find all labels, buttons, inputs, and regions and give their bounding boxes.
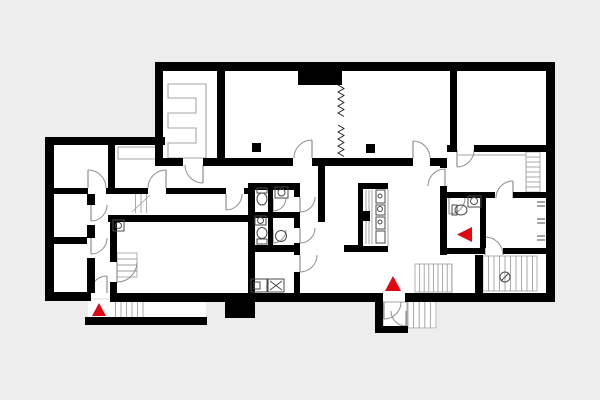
wall-outer-right xyxy=(546,62,555,302)
wall-lw-top-b xyxy=(106,188,148,194)
wall-eroom-right xyxy=(217,62,225,165)
wall-stairC-left xyxy=(475,255,483,293)
wall-rw248-b xyxy=(503,248,547,254)
island-stub xyxy=(344,245,358,252)
floor-plan-page xyxy=(0,0,600,400)
wall-hall-right-a xyxy=(440,158,447,168)
wall-lw-L34div xyxy=(53,237,87,244)
wall-outer-bottom-right xyxy=(405,293,555,302)
wall-div158-b xyxy=(203,158,293,166)
wall-corridor xyxy=(318,166,325,222)
wall-topright-v xyxy=(450,70,457,152)
wall-lw-vert-b xyxy=(87,225,95,238)
wall-div158-c xyxy=(312,158,413,166)
wall-lw-top-d xyxy=(244,188,248,194)
wall-outer-left xyxy=(45,137,54,301)
wall-cluster-right-b xyxy=(294,212,300,228)
plate-entry-stoop xyxy=(88,300,206,318)
plate-vestibule xyxy=(380,298,437,329)
wall-outer-bottom-mid xyxy=(110,293,376,302)
wall-lw-top-a xyxy=(53,188,88,194)
wall-lw-L12div xyxy=(108,145,115,188)
wall-top-protrusion xyxy=(298,70,342,85)
island-bottom-cap xyxy=(358,246,388,252)
column-2 xyxy=(366,144,375,153)
wall-cluster-right-d xyxy=(294,272,300,293)
wall-div158-a xyxy=(155,158,183,166)
wall-topright-h-b xyxy=(474,145,547,152)
wall-lw-L5top xyxy=(108,215,248,222)
wall-cluster-bottomdiv xyxy=(248,245,300,252)
wall-vestibule-bottom xyxy=(375,326,408,333)
wall-leftwing-top xyxy=(45,137,165,145)
wall-cluster-right-a xyxy=(294,183,300,197)
wall-bottom-protrusion xyxy=(225,302,255,318)
wall-stoop-bottom xyxy=(85,317,207,325)
wall-cluster-top xyxy=(248,183,300,190)
wall-rw248-a xyxy=(440,248,485,254)
column-1 xyxy=(252,143,261,152)
wall-outer-top xyxy=(155,62,555,71)
floor-plan-drawing xyxy=(0,0,600,400)
island-block xyxy=(362,211,370,221)
wall-cluster-left xyxy=(248,183,255,293)
wall-lw-c2-b xyxy=(110,282,117,293)
wall-lw-vert-a xyxy=(87,194,95,205)
wall-lw-vert-c xyxy=(87,258,95,293)
wall-rw192-b xyxy=(513,192,547,198)
wall-lw-top-c xyxy=(166,188,226,194)
wall-eroom-left xyxy=(155,62,163,162)
